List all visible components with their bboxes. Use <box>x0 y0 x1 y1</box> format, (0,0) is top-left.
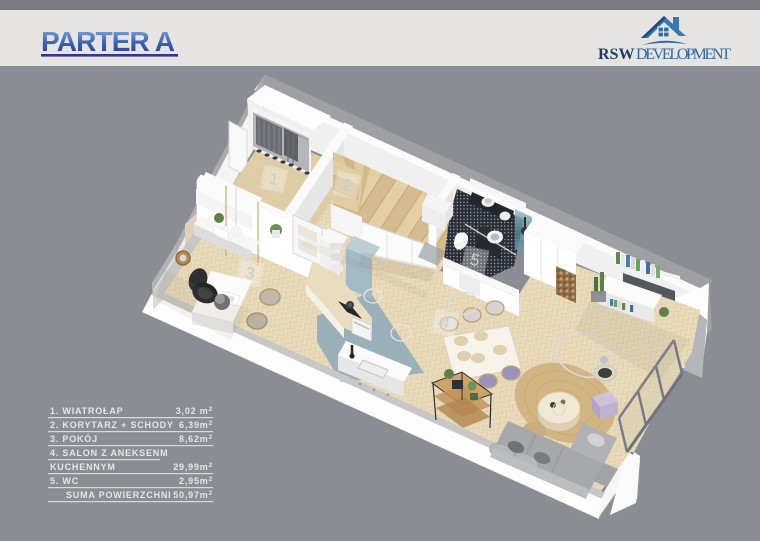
svg-text:3. POKÓJ: 3. POKÓJ <box>50 433 98 444</box>
svg-text:KUCHENNYM: KUCHENNYM <box>50 462 116 472</box>
svg-text:2. KORYTARZ + SCHODY: 2. KORYTARZ + SCHODY <box>50 420 174 430</box>
svg-text:RSW: RSW <box>598 46 634 63</box>
svg-text:29,99m2: 29,99m2 <box>173 462 213 472</box>
svg-text:6,39m2: 6,39m2 <box>179 420 213 430</box>
svg-text:DEVELOPMENT: DEVELOPMENT <box>636 46 731 63</box>
svg-text:50,97m2: 50,97m2 <box>173 490 213 500</box>
svg-text:4. SALON Z ANEKSENM: 4. SALON Z ANEKSENM <box>50 448 168 458</box>
svg-text:3,02 m2: 3,02 m2 <box>176 406 213 416</box>
svg-text:5. WC: 5. WC <box>50 476 79 486</box>
svg-text:PARTER A: PARTER A <box>41 26 177 57</box>
svg-text:SUMA POWIERZCHNI: SUMA POWIERZCHNI <box>66 490 171 500</box>
svg-text:2,95m2: 2,95m2 <box>179 476 213 486</box>
svg-text:8,62m2: 8,62m2 <box>179 434 213 444</box>
svg-text:1. WIATROŁAP: 1. WIATROŁAP <box>50 406 123 416</box>
